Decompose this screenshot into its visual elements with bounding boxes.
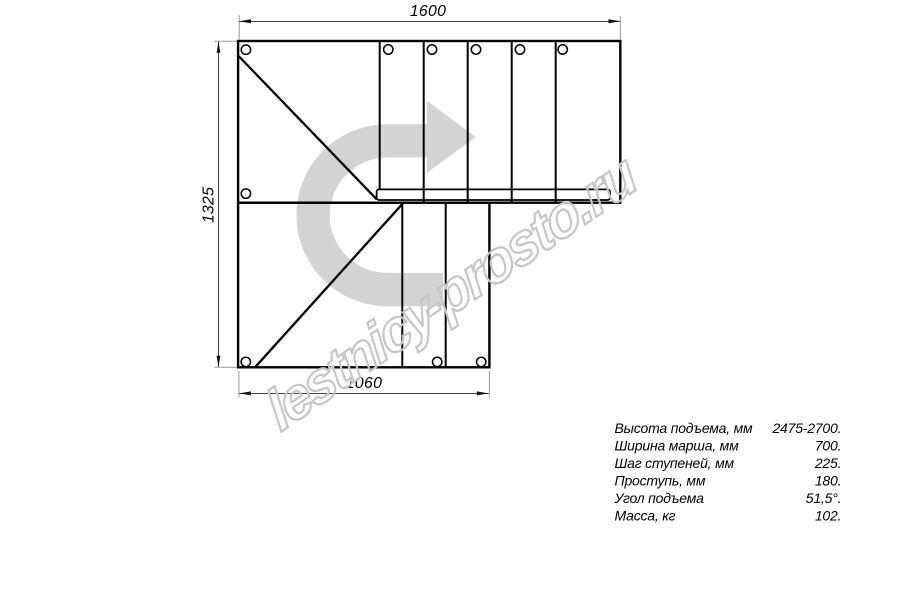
svg-text:Проступь, мм: Проступь, мм	[615, 473, 706, 489]
svg-text:180.: 180.	[815, 473, 841, 489]
svg-text:1600: 1600	[410, 3, 446, 20]
svg-text:225.: 225.	[814, 455, 841, 471]
svg-text:Шаг ступеней, мм: Шаг ступеней, мм	[615, 455, 735, 471]
svg-text:102.: 102.	[815, 507, 841, 523]
svg-text:2475-2700.: 2475-2700.	[771, 420, 841, 436]
svg-text:Масса, кг: Масса, кг	[615, 507, 676, 523]
svg-text:1325: 1325	[201, 187, 218, 223]
svg-text:700.: 700.	[815, 438, 841, 454]
svg-text:Ширина марша, мм: Ширина марша, мм	[615, 438, 740, 454]
svg-text:Угол подъема: Угол подъема	[614, 490, 705, 506]
svg-text:Высота подъема, мм: Высота подъема, мм	[615, 420, 754, 436]
svg-text:51,5°.: 51,5°.	[806, 490, 842, 506]
